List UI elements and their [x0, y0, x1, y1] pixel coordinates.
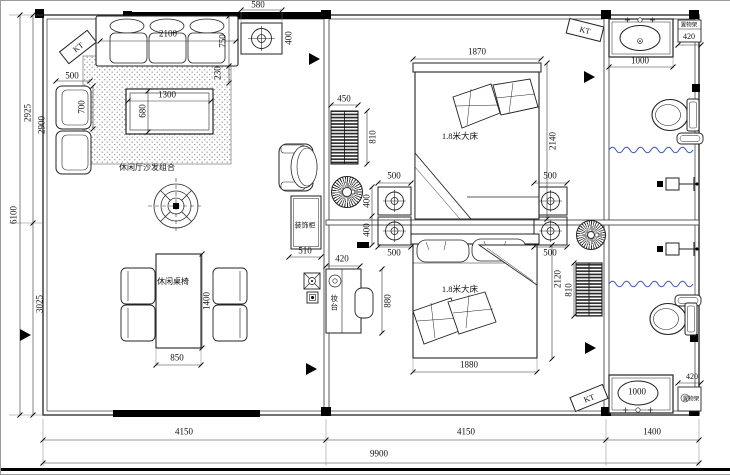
floor-plan-canvas: KT KT KT 休闲厅沙发组合 休闲桌椅 1.8米大床 1.8米大床 装饰柜 …	[0, 0, 730, 475]
spotlight-symbols	[304, 273, 320, 303]
dim-armchair-width: 500	[65, 72, 79, 81]
bed-2	[411, 234, 539, 358]
exhaust-fan-icon	[576, 220, 606, 250]
dim-top-light-width: 580	[251, 1, 265, 10]
living-area-label: 休闲厅沙发组合	[119, 164, 175, 172]
dim-bottom-segment-1: 4150	[175, 428, 193, 437]
dim-dining-height: 1400	[203, 292, 212, 310]
dim-radiator2-height: 810	[565, 283, 574, 297]
dim-sink2-width: 1000	[628, 388, 646, 397]
dim-wall-light-height: 400	[363, 223, 372, 237]
dining-set-label: 休闲桌椅	[157, 278, 189, 286]
shelf-2-label: 置物架	[683, 397, 700, 403]
dim-wall-light-width: 500	[543, 172, 557, 181]
dim-bottom-segment-3: 1400	[643, 428, 661, 437]
dim-shelf2-width: 420	[686, 373, 698, 381]
dim-top-light-height: 400	[285, 31, 294, 45]
dim-coffee-table-depth: 680	[139, 104, 148, 118]
dim-bed2-height: 2120	[554, 270, 563, 288]
dim-wall-light-width: 500	[387, 249, 401, 258]
dim-sofa-depth: 750	[219, 34, 228, 48]
dim-shelf1-width: 420	[683, 33, 695, 41]
dim-dresser-height: 880	[384, 294, 393, 308]
dining-set	[121, 254, 247, 348]
dim-cabinet-width: 510	[298, 247, 312, 256]
armchair	[279, 144, 317, 191]
dim-radiator1-height: 810	[369, 130, 378, 144]
dim-radiator1-width: 450	[337, 95, 351, 104]
dim-sink1-width: 1000	[631, 57, 649, 66]
drawing-frame-line	[1, 468, 730, 471]
dim-bed2-width: 1880	[460, 361, 478, 370]
dim-left-top-outer: 2925	[24, 104, 33, 122]
dim-dining-width: 850	[170, 354, 184, 363]
dim-wall-light-width: 500	[387, 172, 401, 181]
dim-bed1-height: 2140	[549, 132, 558, 150]
ceiling-fan-symbol	[148, 178, 204, 234]
dim-bed1-width: 1870	[468, 48, 486, 57]
dim-bottom-segment-2: 4150	[457, 428, 475, 437]
dim-total-height: 6100	[10, 206, 19, 224]
bathroom-2	[609, 242, 701, 413]
dim-sofa-width: 2100	[159, 30, 177, 39]
dim-left-bottom: 3025	[36, 295, 45, 313]
floor-plan-drawing	[1, 1, 730, 474]
dim-total-width: 9900	[370, 450, 388, 459]
exhaust-fan-icon	[331, 176, 363, 208]
decor-cabinet-label: 装饰柜	[295, 223, 316, 230]
dim-sofa-offset: 230	[214, 66, 223, 80]
dressing-table-label: 妆台	[330, 295, 338, 312]
dim-wall-light-height: 400	[363, 194, 372, 208]
bed-1-label: 1.8米大床	[442, 132, 478, 141]
dim-coffee-table-width: 1300	[158, 91, 176, 100]
shelf-1-label: 置物架	[681, 23, 698, 29]
dim-dresser-width: 420	[335, 255, 349, 264]
dim-armchair-depth: 700	[78, 100, 87, 114]
bathroom-1	[609, 18, 703, 192]
dim-left-top-inner: 2900	[38, 116, 47, 134]
dim-wall-light-width: 500	[543, 249, 557, 258]
bed-1	[413, 63, 541, 219]
bed-2-label: 1.8米大床	[442, 285, 478, 294]
